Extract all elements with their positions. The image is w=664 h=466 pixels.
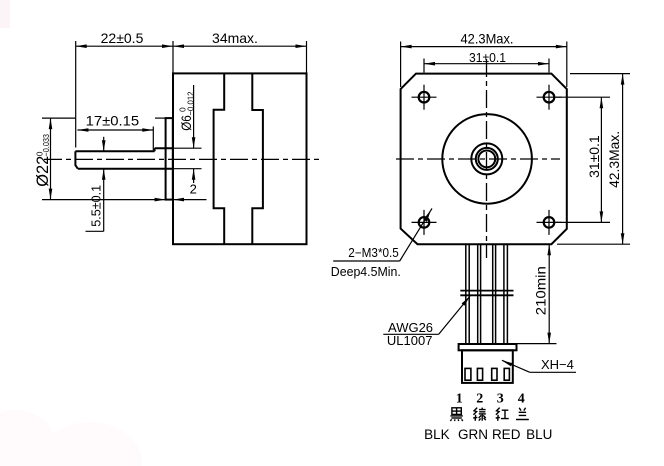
svg-text:−0.033: −0.033 (41, 134, 51, 157)
svg-text:4: 4 (518, 392, 525, 407)
svg-text:3: 3 (497, 392, 504, 407)
svg-text:BLK: BLK (424, 427, 450, 442)
svg-text:RED: RED (492, 427, 521, 442)
svg-text:31±0.1: 31±0.1 (587, 135, 602, 178)
svg-text:XH−4: XH−4 (541, 357, 574, 372)
svg-text:34max.: 34max. (212, 30, 258, 46)
svg-text:2: 2 (476, 392, 483, 407)
svg-text:42.3Max.: 42.3Max. (461, 30, 514, 46)
svg-text:2−M3*0.5: 2−M3*0.5 (348, 246, 399, 260)
svg-text:Ø22: Ø22 (34, 156, 52, 187)
svg-text:Ø6: Ø6 (178, 115, 194, 131)
svg-text:31±0.1: 31±0.1 (469, 50, 506, 65)
svg-text:GRN: GRN (458, 427, 488, 442)
svg-text:Deep4.5Min.: Deep4.5Min. (331, 265, 401, 279)
svg-text:22±0.5: 22±0.5 (101, 30, 144, 46)
svg-text:42.3Max.: 42.3Max. (607, 131, 622, 188)
svg-text:BLU: BLU (526, 427, 552, 442)
svg-text:210min: 210min (533, 266, 549, 315)
svg-text:UL1007: UL1007 (387, 333, 433, 348)
svg-text:17±0.15: 17±0.15 (86, 112, 140, 128)
svg-text:5.5±0.1: 5.5±0.1 (89, 185, 104, 227)
svg-text:2: 2 (190, 182, 197, 197)
svg-text:1: 1 (456, 392, 463, 407)
